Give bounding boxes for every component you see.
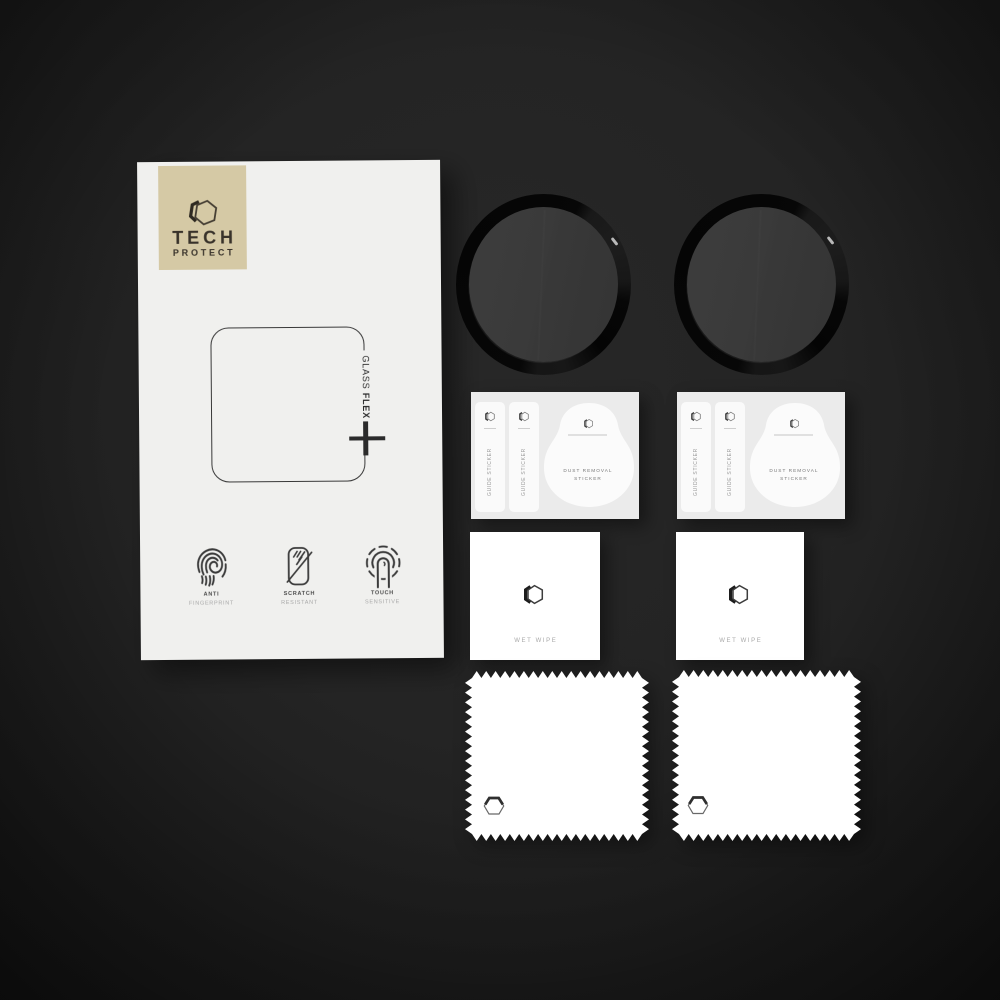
svg-text:DUST REMOVAL: DUST REMOVAL — [769, 468, 818, 473]
svg-text:DUST REMOVAL: DUST REMOVAL — [563, 468, 612, 473]
svg-text:STICKER: STICKER — [574, 476, 602, 481]
svg-text:STICKER: STICKER — [780, 476, 808, 481]
